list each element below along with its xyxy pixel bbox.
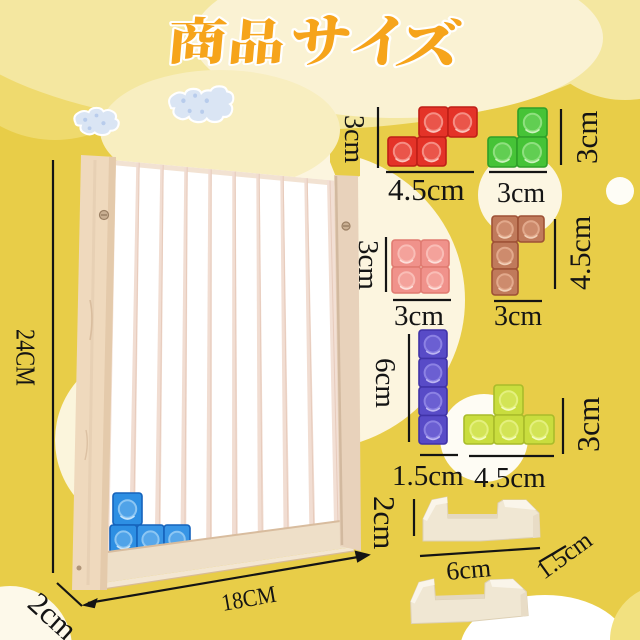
svg-text:6cm: 6cm [445,553,492,586]
svg-text:3cm: 3cm [570,397,606,452]
svg-text:1.5cm: 1.5cm [392,460,464,492]
svg-text:3cm: 3cm [497,178,545,209]
svg-text:3cm: 3cm [569,111,604,164]
svg-text:24CM: 24CM [11,329,41,386]
svg-text:4.5cm: 4.5cm [474,462,546,494]
svg-text:6cm: 6cm [369,358,401,408]
svg-text:4.5cm: 4.5cm [564,216,597,290]
svg-text:4.5cm: 4.5cm [388,172,465,207]
svg-text:2cm: 2cm [367,496,402,549]
svg-text:3cm: 3cm [352,240,384,290]
svg-text:3cm: 3cm [394,300,444,332]
svg-text:3cm: 3cm [494,301,542,332]
svg-text:3cm: 3cm [338,115,369,163]
